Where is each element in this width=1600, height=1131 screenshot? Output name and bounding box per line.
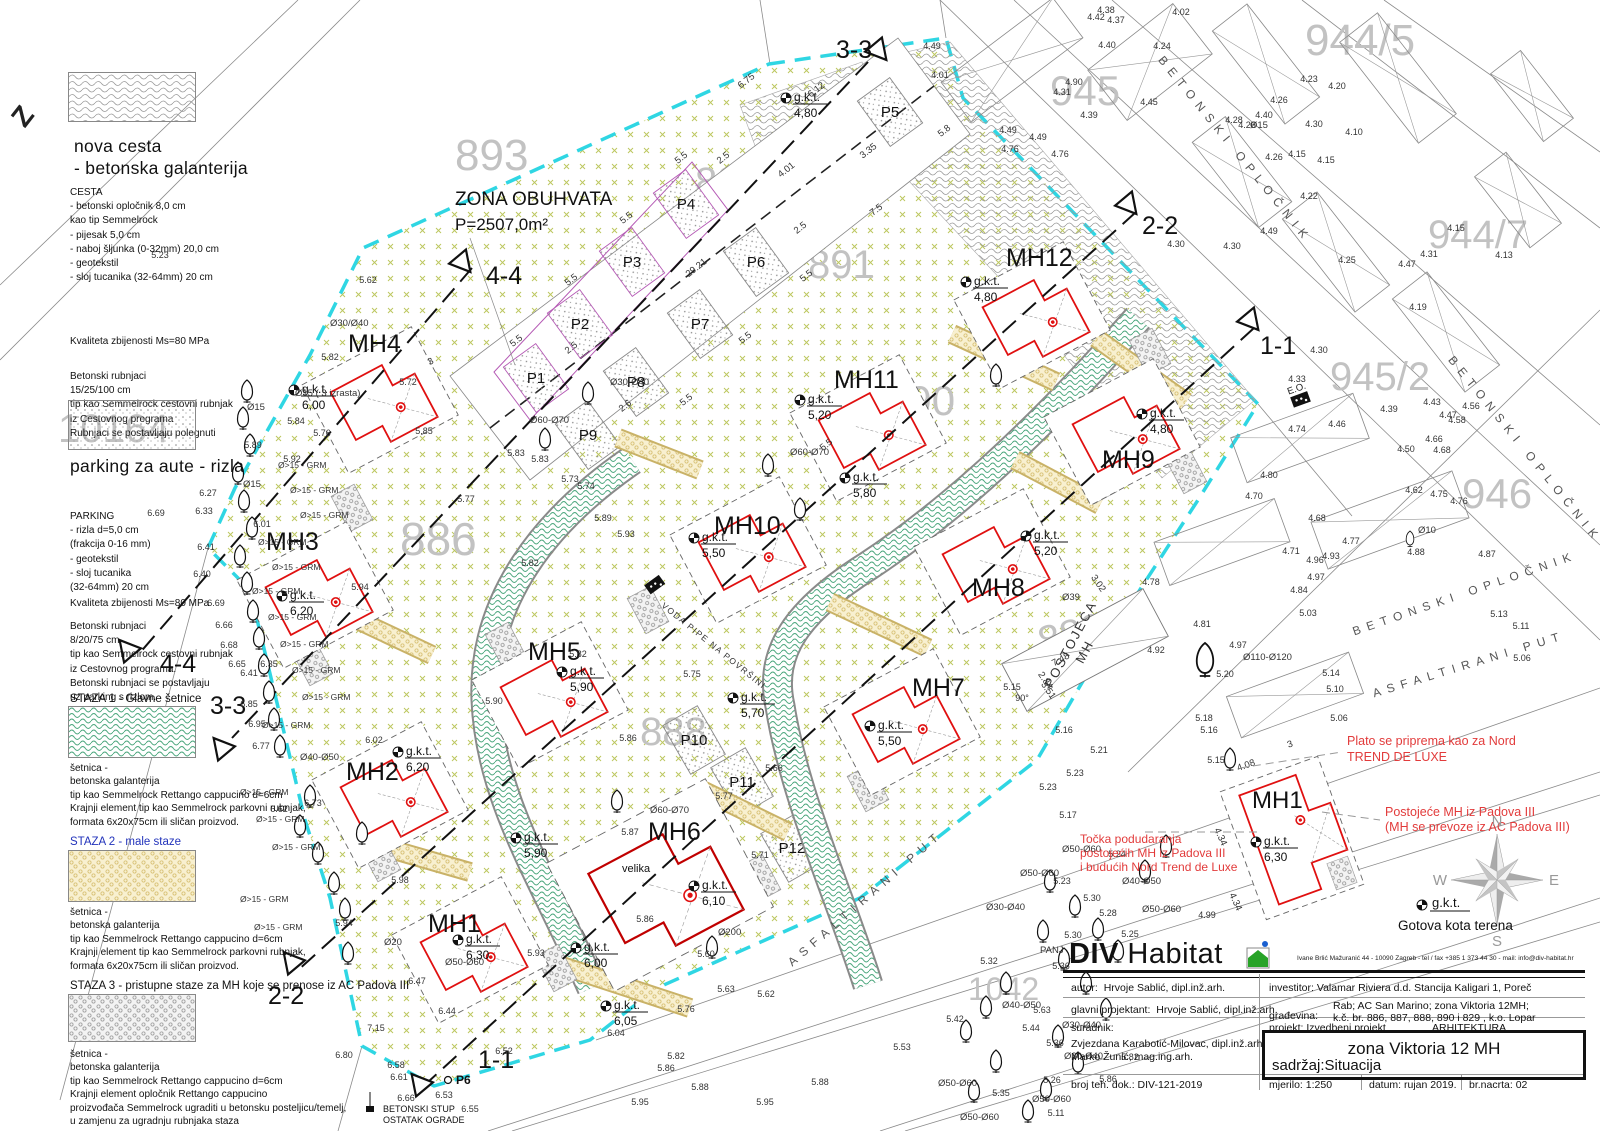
gkt-value: 5,20 [808,408,832,422]
svg-text:Točka podudaranja: Točka podudaranja [1080,832,1182,846]
svg-text:P6: P6 [456,1073,471,1087]
cadastral-line [940,0,946,38]
spot-height: 5.62 [757,989,775,999]
tree-size-label: Ø50-Ø60 [1020,868,1059,879]
spot-height: 4.49 [999,125,1017,135]
spot-height: 5.03 [1299,608,1317,618]
stall-label: P2 [571,316,589,333]
tree-size-label: Ø15 [1250,120,1268,131]
spot-height: 5.88 [811,1077,829,1087]
spot-height: 4.66 [1425,434,1443,444]
spot-height: 5.21 [1090,745,1108,755]
tree-size-label: Ø50-Ø60 [1142,904,1181,915]
spot-height: 5.88 [691,1082,709,1092]
spot-height: 4.81 [1193,619,1211,629]
legend-line: tip kao Semmelrock Rettango cappucino d=… [70,933,306,946]
gkt-label: g.k.t. [1034,528,1060,542]
spot-height: 5.32 [980,956,998,966]
title-block: DIV Habitat Ivane Brlić Mažuranić 44 - 1… [1063,938,1587,1094]
spot-height: 5.42 [946,1014,964,1024]
spot-height: 4.93 [1322,551,1340,561]
svg-text:ASFALTIRANI PUT: ASFALTIRANI PUT [1371,628,1567,700]
legend-line: u zamjenu za ugradnju rubnjaka staza [70,1115,346,1128]
spot-height: 5.13 [1490,609,1508,619]
spot-height: 4.30 [1167,239,1185,249]
svg-text:W: W [1433,872,1448,889]
gkt-value: 6,00 [584,956,608,970]
spot-height: 4.62 [1405,485,1423,495]
spot-height: 5.60 [697,949,715,959]
spot-height: 5.18 [1195,713,1213,723]
spot-height: 4.45 [1140,97,1158,107]
scale: mjerilo: 1:250 [1269,1079,1332,1091]
staza2-spec: šetnica -betonska galanterijatip kao Sem… [70,906,306,973]
svg-text:BETONSKI OPLOČNIK: BETONSKI OPLOČNIK [1350,547,1578,638]
neighbour-building [1226,652,1363,738]
spot-height: 5.28 [1099,908,1117,918]
legend-line: 8/20/75 cm [70,634,233,648]
legend-line: - betonski opločnik 8,0 cm [70,200,219,214]
neighbour-building [1282,192,1389,312]
brand-address: Ivane Brlić Mažuranić 44 - 10090 Zagreb … [1297,955,1574,962]
legend-line: Krajnji element opločnik Rettango cappuc… [70,1088,346,1101]
mh-label: MH6 [648,818,701,846]
road-swatch [68,72,196,122]
gkt-value: 5,50 [878,734,902,748]
mh-label: MH11 [834,366,899,394]
spot-height: 6.52 [495,1046,513,1056]
spot-height: 4.88 [1407,547,1425,557]
gkt-label: g.k.t. [1264,834,1290,848]
tree-icon [1197,643,1214,678]
cesta-spec: CESTA- betonski opločnik 8,0 cmkao tip S… [70,186,219,285]
spot-height: 4.90 [1065,77,1083,87]
staza1-title: STAZA 1 - Glavne šetnice [70,693,201,705]
spot-height: 5.86 [619,733,637,743]
gkt-value: 5,90 [570,680,594,694]
road-title: nova cesta [74,136,162,157]
spot-height: 4.24 [1153,41,1171,51]
drawing-title: zona Viktoria 12 MH [1265,1039,1583,1059]
spot-height: 5.36 [1046,1038,1064,1048]
parcel-number: 945/2 [1330,355,1430,399]
gradjevina-label: građevina: [1269,1010,1318,1022]
spot-height: 4.30 [1310,345,1328,355]
sheet-number: br.nacrta: 02 [1469,1079,1527,1091]
legend-line: 15/25/100 cm [70,384,233,398]
spot-height: 4.77 [1342,536,1360,546]
parking-spec: PARKING- rizla d=5,0 cm(frakcija 0-16 mm… [70,510,151,595]
gkt-label: g.k.t. [741,690,767,704]
suradnik-1: Zvjezdana Karabotić-Milovac, dipl.inž.ar… [1071,1038,1265,1050]
brand-bold: DIV [1069,938,1119,970]
spot-height: 5.74 [577,481,595,491]
legend-line: (frakcija 0-16 mm) [70,538,151,552]
spot-height: 5.85 [415,426,433,436]
spot-height: 4.76 [1001,144,1019,154]
spot-height: 4.01 [931,70,949,80]
brand-logo: DIV Habitat [1069,938,1223,971]
spot-height: 4.74 [1288,424,1306,434]
mh-note: velika [622,863,651,875]
legend-line: Betonski rubnjaci [70,620,233,634]
spot-height: 4.39 [1080,110,1098,120]
spot-height: 6.55 [461,1104,479,1114]
spot-height: 4.56 [1462,401,1480,411]
spot-height: 5.53 [893,1042,911,1052]
stall-label: P3 [623,254,641,271]
neighbour-building [1212,4,1319,124]
legend-line: (32-64mm) 20 cm [70,581,151,595]
dimension-label: 3 [1286,739,1295,751]
spot-height: 5.72 [399,377,417,387]
svg-text:i budućih Nord Trend de Luxe: i budućih Nord Trend de Luxe [1080,860,1238,874]
section-label: 4-4 [486,262,522,290]
spot-height: 4.92 [1147,645,1165,655]
stall-label: P5 [881,104,899,121]
spot-height: 4.19 [1409,302,1427,312]
spot-height: 4.31 [1053,87,1071,97]
legend-line: Betonski rubnjaci se postavljaju [70,677,233,691]
spot-height: 4.30 [1223,241,1241,251]
legend-line: formata 6x20x75cm ili sličan proizvod. [70,960,306,973]
legend-line: betonska galanterija [70,919,306,932]
spot-height: 4.15 [1288,149,1306,159]
tree-icon [981,996,992,1019]
spot-height: 5.35 [992,1088,1010,1098]
spot-height: 6.44 [438,1006,456,1016]
legend-line: Krajnji element tip kao Semmelrock parko… [70,802,306,815]
legend-line: - rizla d=5,0 cm [70,524,151,538]
spot-height: 6.53 [435,1090,453,1100]
road-quality: Kvaliteta zbijenosti Ms=80 MPa [70,336,209,347]
spot-height: 5.95 [631,1097,649,1107]
svg-text:Gotova kota terena: Gotova kota terena [1398,918,1513,933]
mh1-detail-label: MH1 [1252,787,1303,814]
staza3-title: STAZA 3 - pristupne staze za MH koje se … [70,980,409,992]
tree-size-label: Ø50-Ø60 [445,957,484,968]
spot-height: 4.13 [1495,250,1513,260]
tree-size-label: Ø39 [1062,592,1080,603]
spot-height: 4.50 [1397,444,1415,454]
svg-text:(MH se prevoze iz AC Padova II: (MH se prevoze iz AC Padova III) [1385,820,1570,834]
spot-height: 5.17 [1059,810,1077,820]
spot-height: 4.99 [1198,910,1216,920]
spot-height: 4.49 [1029,132,1047,142]
stall-label: P1 [527,370,545,387]
tree-size-label: Ø200 [718,927,741,938]
autor-value: Hrvoje Sablić, dipl.inž.arh. [1104,982,1225,994]
tree-size-label: PANJ [1040,945,1064,956]
spot-height: 5.75 [683,669,701,679]
gkt-value: 4,80 [974,290,998,304]
tb-rule [1063,970,1585,978]
spot-height: 5.16 [1200,725,1218,735]
legend-line: kao tip Semmelrock [70,214,219,228]
zone-area: P=2507,0m² [455,215,548,234]
spot-height: 5.66 [765,763,783,773]
gkt-value: 6,05 [614,1014,638,1028]
spot-height: 4.43 [1423,397,1441,407]
svg-text:OSTATAK OGRADE: OSTATAK OGRADE [383,1115,465,1125]
gkt-label: g.k.t. [406,744,432,758]
stall-label: P6 [747,254,765,271]
spot-height: 5.63 [717,984,735,994]
spot-height: 5.93 [527,948,545,958]
spot-height: 5.83 [507,448,525,458]
legend-line: - geotekstil [70,553,151,567]
spot-height: 5.86 [657,1063,675,1073]
stall-label: P10 [681,732,708,749]
brand-house-icon [1241,940,1275,970]
legend-line: betonska galanterija [70,775,306,788]
legend-line: šetnica - [70,906,306,919]
parcel-number: 944/7 [1428,213,1528,257]
spot-height: 6.66 [397,1093,415,1103]
svg-text:Postojeće MH iz Padova III: Postojeće MH iz Padova III [1385,805,1535,819]
spot-height: 5.11 [1513,621,1530,631]
spot-height: 4.46 [1328,419,1346,429]
tree-icon [1038,920,1049,943]
spot-height: 5.77 [715,791,733,801]
spot-height: 4.37 [1107,15,1125,25]
staza2-swatch [68,850,196,902]
tree-size-label: Ø50-Ø60 [938,1078,977,1089]
spot-height: 5.71 [751,850,769,860]
svg-text:postojećih MH iz Padova III: postojećih MH iz Padova III [1080,846,1225,860]
tree-size-label: Ø30-Ø40 [610,377,649,388]
spot-height: 4.97 [1229,640,1247,650]
spot-height: 4.70 [1245,491,1263,501]
drawing-subject: sadržaj:Situacija [1272,1057,1381,1074]
gkt-label: g.k.t. [584,940,610,954]
spot-height: 5.23 [1066,768,1084,778]
legend-line: tip kao Semmelrock Rettango cappucino d=… [70,789,306,802]
gkt-label: g.k.t. [853,470,879,484]
legend-line: tip kao Semmelrock cestovni rubnjak [70,648,233,662]
svg-text:g.k.t.: g.k.t. [1432,895,1460,910]
spot-height: 4.40 [1255,110,1273,120]
legend-line: Betonski rubnjaci [70,370,233,384]
gkt-value: 5,20 [1034,544,1058,558]
spot-height: 5.44 [1022,1023,1040,1033]
spot-height: 5.16 [1055,725,1073,735]
stall-label: P9 [579,427,597,444]
legend-line: proizvođača Semmelrock ugraditi u betons… [70,1102,346,1115]
suradnik-label: suradnik: [1071,1022,1114,1034]
dimension-label: 4.34 [1211,826,1229,847]
legend-line: PARKING [70,510,151,524]
cadastral-line [760,0,770,64]
gkt-label: g.k.t. [974,274,1000,288]
spot-height: 5.87 [621,827,639,837]
gkt-value: 4,80 [1150,422,1174,436]
spot-height: 5.93 [617,529,635,539]
spot-height: 4.68 [1308,513,1326,523]
spot-height: 5.15 [1207,755,1225,765]
spot-height: 5.82 [521,558,539,568]
parcel-number: 946 [1462,470,1532,517]
mh-label: MH12 [1006,244,1073,272]
gkt-label: g.k.t. [1150,406,1176,420]
investitor: investitor: Valamar Riviera d.d. Stancij… [1269,982,1531,994]
svg-text:Plato se priprema kao za Nord: Plato se priprema kao za Nord [1347,734,1516,748]
staza1-spec: šetnica -betonska galanterijatip kao Sem… [70,762,306,829]
stall-label: P7 [691,316,709,333]
eo-marker: E.O. [1286,381,1311,408]
spot-height: 5.76 [677,1004,695,1014]
tree-size-label: Ø60-Ø70 [530,415,569,426]
spot-height: 4.76 [1450,496,1468,506]
parcel-number: 893 [455,131,528,180]
section-label: 2-2 [1142,212,1178,240]
tree-size-label: Ø60-Ø70 [790,447,829,458]
spot-height: 5.10 [1326,684,1344,694]
legend-line: - naboj šljunka (0-32mm) 20,0 cm [70,243,219,257]
gkt-label: g.k.t. [702,878,728,892]
svg-text:BETONSKI STUP: BETONSKI STUP [383,1104,455,1114]
spot-height: 4.25 [1338,255,1356,265]
page: { "zone": {"line1":"ZONA OBUHVATA","line… [0,0,1600,1131]
gkt-label: g.k.t. [570,664,596,678]
spot-height: 5.98 [391,875,409,885]
section-label: 1-1 [1260,332,1296,360]
spot-height: 5.83 [531,454,549,464]
autor-label: autor: Hrvoje Sablić, dipl.inž.arh. [1071,982,1225,994]
spot-height: 5.15 [1003,682,1021,692]
legend-line: betonska galanterija [70,1061,346,1074]
spot-height: 4.49 [923,41,941,51]
gkt-value: 6,30 [1264,850,1288,864]
tree-size-label: Ø50-Ø60 [960,1112,999,1123]
spot-height: 6.47 [408,976,426,986]
stall-label: P4 [677,196,695,213]
tree-icon [991,1050,1002,1073]
tree-size-label: Ø50-Ø60 [1032,1094,1071,1105]
spot-height: 6.04 [607,1028,625,1038]
spot-height: 90° [1015,693,1029,703]
legend-line: šetnica - [70,762,306,775]
legend: nova cesta - betonska galanterija CESTA-… [62,64,392,1131]
site-plan-canvas: 893892891890886889888101641042944/594594… [0,0,1600,1131]
legend-line: - sloj tucanika (32-64mm) 20 cm [70,271,219,285]
gradjevina-1: Rab; AC San Marino; zona Viktoria 12MH; [1333,1000,1529,1012]
gkt-label: g.k.t. [878,718,904,732]
spot-height: 5.89 [594,513,612,523]
parcel-number: 886 [400,513,477,565]
spot-height: 4.39 [1380,404,1398,414]
gkt-label: g.k.t. [702,530,728,544]
spot-height: 4.38 [1097,5,1115,15]
spot-height: 4.68 [1433,445,1451,455]
spot-height: 5.06 [1330,713,1348,723]
brand-light: Habitat [1127,938,1222,970]
gkt-value: 6,10 [702,894,726,908]
spot-height: 4.22 [1300,191,1318,201]
spot-height: 4.15 [1447,223,1465,233]
spot-height: 6.61 [390,1072,408,1082]
legend-line: Krajnji element tip kao Semmelrock parko… [70,946,306,959]
z-label: Z [5,100,40,133]
mh1-detail: MH1 [1220,756,1364,919]
spot-height: 4.26 [1265,152,1283,162]
svg-text:E: E [1549,872,1559,889]
spot-height: 4.84 [1290,585,1308,595]
spot-height: 5.86 [636,914,654,924]
gkt-label: g.k.t. [808,392,834,406]
staza3-spec: šetnica -betonska galanterijatip kao Sem… [70,1048,346,1128]
staza2-title: STAZA 2 - male staze [70,836,181,848]
gkt-value: 5,90 [524,846,548,860]
spot-height: 4.47 [1439,410,1457,420]
legend-line: - geotekstil [70,257,219,271]
spot-height: 5.73 [561,474,579,484]
spot-height: 5.20 [1216,669,1234,679]
legend-line: - sloj tucanika [70,567,151,581]
mh-label: MH8 [972,574,1025,602]
spot-height: 5.95 [756,1097,774,1107]
spot-height: 4.20 [1328,81,1346,91]
spot-height: 4.97 [1307,572,1325,582]
spot-height: 5.77 [457,494,475,504]
parcel-number: 944/5 [1305,16,1415,65]
gkt-value: 5,50 [702,546,726,560]
tree-size-label: Ø30-Ø40 [986,902,1025,913]
tree-size-label: Ø110-Ø120 [1243,652,1292,663]
gkt-value: 5,80 [853,486,877,500]
spot-height: 5.90 [485,696,503,706]
tree-icon [1406,531,1414,547]
spot-height: 4.02 [1172,7,1190,17]
spot-height: 4.15 [1317,155,1335,165]
spot-height: 5.11 [1048,1108,1065,1118]
svg-text:TREND DE LUXE: TREND DE LUXE [1347,750,1447,764]
tree-size-label: Ø60-Ø70 [650,805,689,816]
zone-title: ZONA OBUHVATA [455,189,613,210]
spot-height: 5.14 [1322,668,1340,678]
mh-label: MH7 [912,674,965,702]
spot-height: 5.30 [1083,893,1101,903]
spot-height: 4.78 [1142,577,1160,587]
spot-height: 5.82 [569,649,587,659]
road-title-2: - betonska galanterija [74,158,248,179]
spot-height: 4.30 [1305,119,1323,129]
tree-size-label: Ø40-Ø50 [1002,1000,1041,1011]
spot-height: 4.10 [1345,127,1363,137]
spot-height: 4.80 [1260,470,1278,480]
tree-size-label: Ø40-Ø50 [1122,876,1161,887]
spot-height: 4.76 [1051,149,1069,159]
section-label: 3-3 [836,36,872,64]
gkt-value: 5,70 [741,706,765,720]
spot-height: 4.75 [1430,489,1448,499]
spot-height: 4.71 [1282,546,1300,556]
spot-height: 5.23 [1039,782,1057,792]
gkt-label: g.k.t. [794,90,820,104]
spot-height: 4.47 [1398,259,1416,269]
tree-icon [1070,895,1081,918]
staza1-swatch [68,706,196,758]
spot-height: 4.31 [1420,249,1438,259]
tree-size-label: Ø10 [1418,525,1436,536]
spot-height: 4.23 [1300,74,1318,84]
legend-line: šetnica - [70,1048,346,1061]
parking-title: parking za aute - rizla [70,456,244,477]
spot-height: 5.82 [667,1051,685,1061]
parking-swatch [68,400,196,450]
legend-line: formata 6x20x75cm ili sličan proizvod. [70,816,306,829]
spot-height: 4.49 [1260,226,1278,236]
